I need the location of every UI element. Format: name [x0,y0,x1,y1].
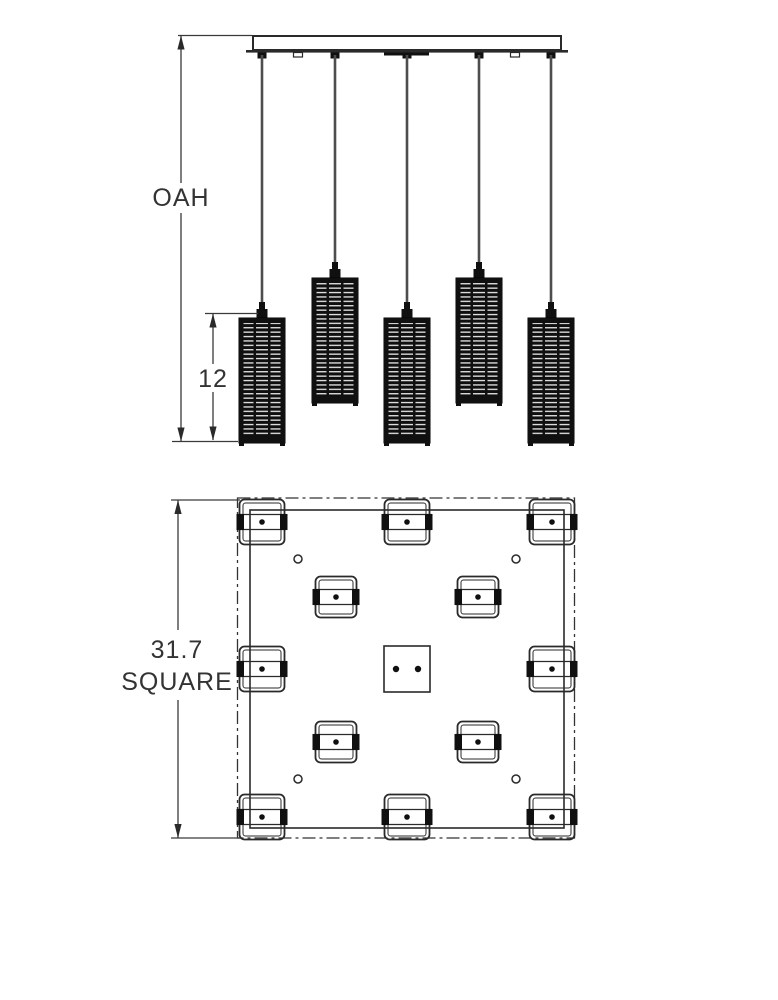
pendant-shade [239,318,285,443]
plan-pendant-symbol [455,722,502,763]
plan-pendant-symbol [237,647,288,692]
plan-pendant-symbol [382,500,433,545]
socket-cap [257,309,268,318]
bracket-tab [382,809,390,825]
pendant [384,53,430,447]
junction-box-screw [415,666,421,672]
stem-center-dot [475,594,481,600]
bracket-tab [382,514,390,530]
canopy-dimension-unit: SQUARE [121,668,233,696]
fixture-dimension-drawing: OAH 12 31.7 [0,0,778,1000]
bracket-tab [455,589,463,605]
bracket-tab [570,661,578,677]
plan-pendant-symbol [455,577,502,618]
socket-cap [474,269,485,278]
screw-hole [512,775,520,783]
bracket-tab [494,589,502,605]
bracket-tab [494,734,502,750]
stem-center-dot [333,594,339,600]
canopy-outline-phantom [238,498,575,838]
shade-foot [312,403,317,406]
technical-drawing-page: OAH 12 31.7 [0,0,778,1000]
shade-top-cap [528,318,574,323]
shade-right-rail [498,278,503,403]
plan-view: 31.7 SQUARE [121,498,577,840]
bracket-tab [237,661,245,677]
bracket-tab [237,809,245,825]
shade-bottom-cap [239,437,285,443]
stem-center-dot [259,519,265,525]
shade-left-rail [528,318,533,443]
shade-right-rail [426,318,431,443]
shade-foot [528,443,533,446]
canopy-hook [511,53,520,58]
shade-foot [497,403,502,406]
socket-neck [259,302,265,309]
pendant-shade [312,278,358,403]
bracket-tab [313,734,321,750]
bracket-tab [425,514,433,530]
socket-cap [330,269,341,278]
shade-divider [471,278,474,403]
pendant [239,53,285,447]
plan-pendant-symbol [313,722,360,763]
bracket-tab [280,661,288,677]
canopy-dimension-value: 31.7 [151,636,204,664]
shade-divider [254,318,257,443]
screw-hole [512,555,520,563]
socket-neck [548,302,554,309]
screw-hole [294,775,302,783]
arrowhead-down-icon [209,427,216,441]
shade-right-rail [354,278,359,403]
shade-bottom-cap [312,397,358,403]
bracket-tab [527,809,535,825]
shade-left-rail [239,318,244,443]
socket-cap [402,309,413,318]
shade-divider [268,318,271,443]
pendant [312,53,358,407]
plan-pendant-symbol [237,500,288,545]
elevation-fixture [239,36,574,446]
socket-cap [546,309,557,318]
stem-center-dot [549,814,555,820]
shade-right-rail [570,318,575,443]
pendant-shade [384,318,430,443]
stem-center-dot [404,814,410,820]
bracket-tab [280,514,288,530]
shade-foot [456,403,461,406]
pendant-shade [528,318,574,443]
stem-center-dot [259,666,265,672]
plan-pendant-symbol [527,795,578,840]
elevation-view: OAH 12 [152,36,574,447]
stem-center-dot [404,519,410,525]
shade-top-cap [239,318,285,323]
bracket-tab [352,589,360,605]
shade-divider [327,278,330,403]
plan-canopy [237,498,578,840]
bracket-tab [527,661,535,677]
shade-divider [341,278,344,403]
shade-left-rail [456,278,461,403]
shade-foot [280,443,285,446]
arrowhead-up-icon [174,500,181,514]
shade-top-cap [312,278,358,283]
bracket-tab [425,809,433,825]
shade-divider [485,278,488,403]
shade-foot [569,443,574,446]
shade-top-cap [456,278,502,283]
bracket-tab [570,809,578,825]
canopy-bar [253,36,561,50]
shade-left-rail [384,318,389,443]
bracket-tab [237,514,245,530]
bracket-tab [352,734,360,750]
shade-divider [543,318,546,443]
center-junction-box [384,646,430,692]
shade-divider [413,318,416,443]
shade-right-rail [281,318,286,443]
junction-box-screw [393,666,399,672]
shade-bottom-cap [384,437,430,443]
shade-bottom-cap [456,397,502,403]
pendant [456,53,502,407]
shade-divider [557,318,560,443]
plan-pendant-symbol [527,647,578,692]
shade-divider [399,318,402,443]
arrowhead-down-icon [174,824,181,838]
socket-neck [404,302,410,309]
shade-top-cap [384,318,430,323]
canopy-hook [294,53,303,58]
oah-dimension-label: OAH [152,184,209,212]
pendant-shade [456,278,502,403]
bracket-tab [527,514,535,530]
stem-center-dot [549,666,555,672]
shade-left-rail [312,278,317,403]
shade-foot [425,443,430,446]
shade-foot [239,443,244,446]
pendant [528,53,574,447]
shade-bottom-cap [528,437,574,443]
stem-center-dot [475,739,481,745]
shade-foot [353,403,358,406]
arrowhead-up-icon [209,314,216,328]
plan-pendant-symbol [237,795,288,840]
stem-center-dot [549,519,555,525]
arrowhead-up-icon [177,36,184,50]
bracket-tab [280,809,288,825]
socket-neck [476,262,482,269]
shade-foot [384,443,389,446]
stem-center-dot [333,739,339,745]
plan-pendant-symbol [382,795,433,840]
bracket-tab [455,734,463,750]
plan-pendant-symbol [313,577,360,618]
screw-hole [294,555,302,563]
socket-neck [332,262,338,269]
plan-pendant-symbol [527,500,578,545]
bracket-tab [570,514,578,530]
arrowhead-down-icon [177,428,184,442]
bracket-tab [313,589,321,605]
stem-center-dot [259,814,265,820]
shade-height-dimension-label: 12 [198,365,228,393]
